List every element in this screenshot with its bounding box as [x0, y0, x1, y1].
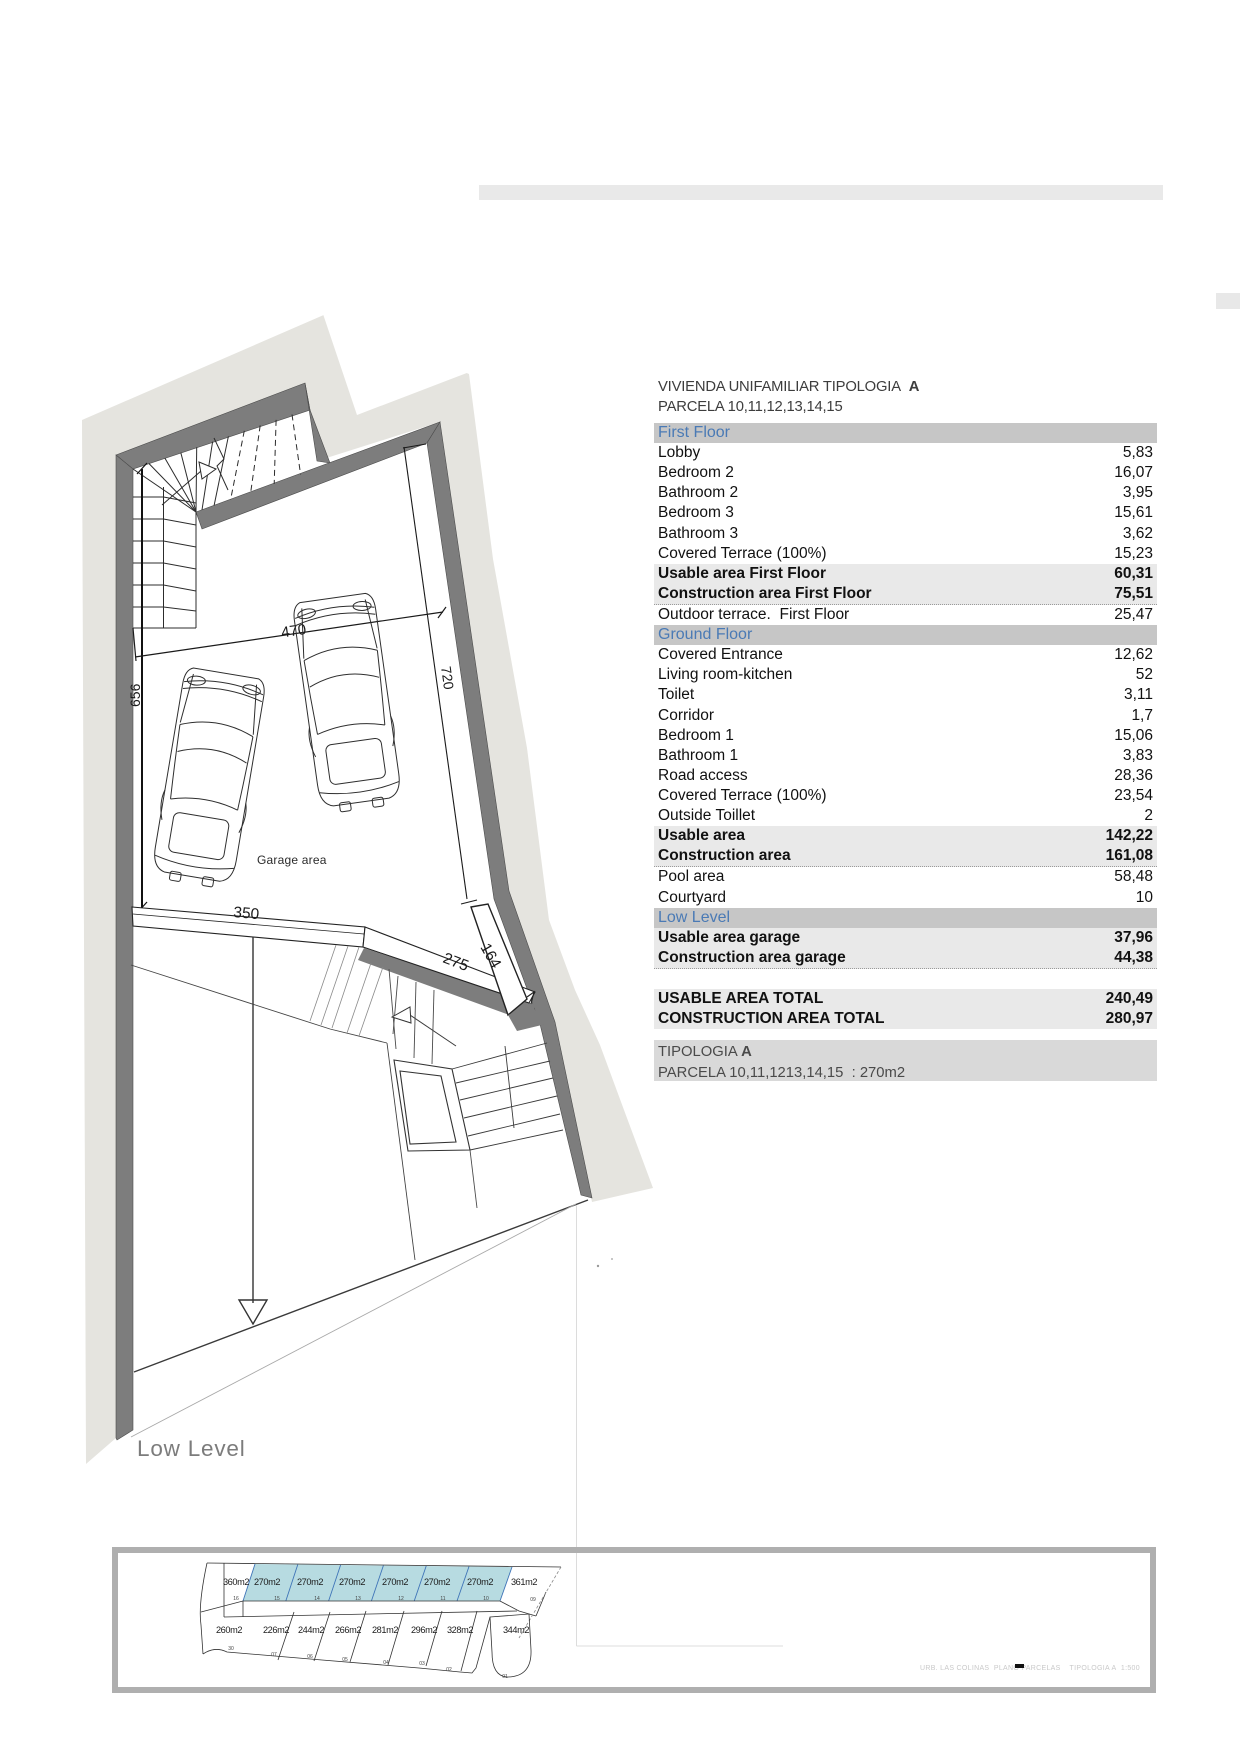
svg-text:328m2: 328m2	[447, 1625, 473, 1635]
svg-text:16: 16	[233, 1596, 239, 1602]
svg-text:15: 15	[274, 1596, 280, 1602]
svg-text:09: 09	[530, 1597, 536, 1603]
svg-text:12: 12	[398, 1596, 404, 1602]
svg-text:Low Level: Low Level	[137, 1436, 246, 1461]
svg-text:350: 350	[233, 904, 261, 923]
svg-text:266m2: 266m2	[335, 1625, 361, 1635]
svg-text:02: 02	[446, 1667, 452, 1673]
svg-text:10: 10	[483, 1596, 489, 1602]
svg-text:296m2: 296m2	[411, 1625, 437, 1635]
svg-text:720: 720	[438, 665, 457, 691]
svg-text:06: 06	[307, 1654, 313, 1660]
svg-text:Garage area: Garage area	[257, 853, 327, 867]
svg-text:01: 01	[502, 1674, 508, 1680]
svg-text:656: 656	[127, 683, 143, 707]
svg-text:344m2: 344m2	[503, 1625, 529, 1635]
svg-text:260m2: 260m2	[216, 1625, 242, 1635]
svg-text:URB. LAS COLINAS PLANO PARCEL: URB. LAS COLINAS PLANO PARCELAS TIPOLOGI…	[920, 1665, 1140, 1672]
svg-text:270m2: 270m2	[382, 1577, 408, 1587]
svg-text:270m2: 270m2	[339, 1577, 365, 1587]
svg-text:361m2: 361m2	[511, 1577, 537, 1587]
svg-text:360m2: 360m2	[223, 1577, 249, 1587]
svg-text:11: 11	[440, 1596, 445, 1602]
svg-text:270m2: 270m2	[424, 1577, 450, 1587]
svg-text:07: 07	[271, 1652, 277, 1658]
svg-text:244m2: 244m2	[298, 1625, 324, 1635]
svg-text:226m2: 226m2	[263, 1625, 289, 1635]
svg-text:270m2: 270m2	[254, 1577, 280, 1587]
svg-text:03: 03	[419, 1661, 425, 1667]
svg-text:281m2: 281m2	[372, 1625, 398, 1635]
svg-text:13: 13	[355, 1596, 361, 1602]
svg-text:30: 30	[228, 1646, 234, 1652]
svg-text:04: 04	[383, 1660, 389, 1666]
svg-text:05: 05	[342, 1657, 348, 1663]
svg-text:270m2: 270m2	[297, 1577, 323, 1587]
svg-text:270m2: 270m2	[467, 1577, 493, 1587]
svg-text:14: 14	[314, 1596, 320, 1602]
